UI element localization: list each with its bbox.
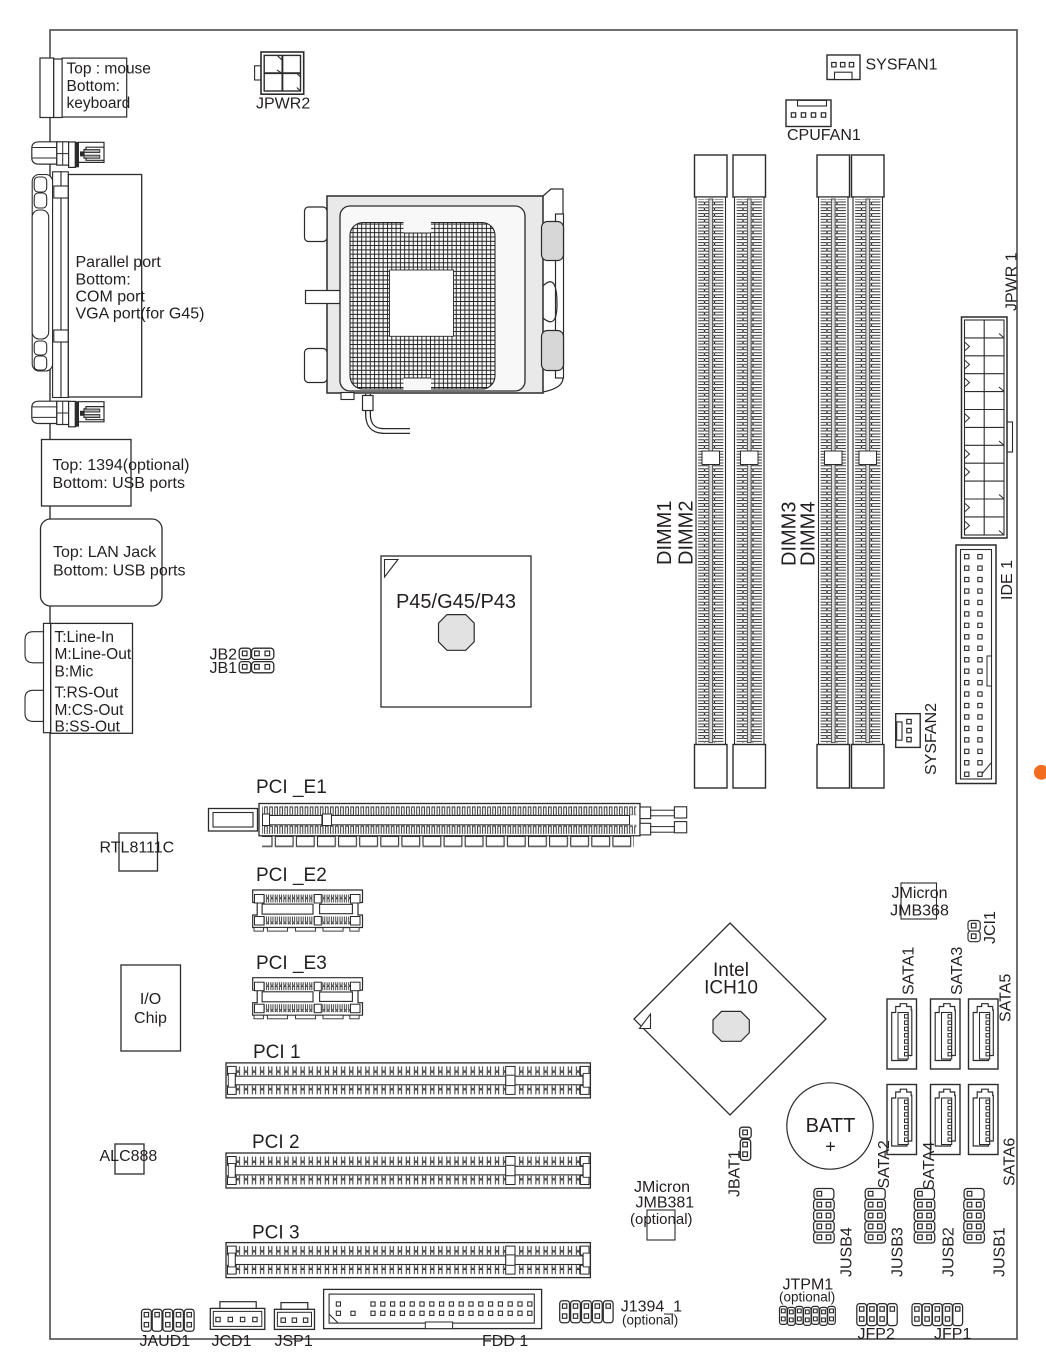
svg-text:JMicron: JMicron xyxy=(891,885,947,902)
svg-text:JB1: JB1 xyxy=(210,660,238,677)
svg-text:ICH10: ICH10 xyxy=(704,978,758,999)
svg-text:Top : mouse: Top : mouse xyxy=(67,61,151,78)
svg-text:(optional): (optional) xyxy=(622,1313,678,1328)
svg-text:JPWR2: JPWR2 xyxy=(256,96,310,113)
svg-text:PCI 1: PCI 1 xyxy=(253,1042,301,1063)
svg-text:SATA1: SATA1 xyxy=(901,947,918,995)
svg-text:JSP1: JSP1 xyxy=(275,1333,313,1350)
svg-text:T:RS-Out: T:RS-Out xyxy=(55,684,119,701)
svg-text:Parallel port: Parallel port xyxy=(76,254,162,271)
svg-text:VGA port(for G45): VGA port(for G45) xyxy=(76,306,205,323)
svg-text:SATA5: SATA5 xyxy=(998,974,1015,1022)
svg-text:JCD1: JCD1 xyxy=(212,1333,252,1350)
svg-text:SATA2: SATA2 xyxy=(876,1140,893,1188)
svg-text:+: + xyxy=(825,1137,836,1157)
svg-text:Bottom: USB ports: Bottom: USB ports xyxy=(53,475,186,492)
svg-text:JUSB3: JUSB3 xyxy=(890,1227,907,1277)
svg-text:COM port: COM port xyxy=(76,288,146,305)
svg-text:PCI 3: PCI 3 xyxy=(252,1223,300,1244)
svg-text:JFP1: JFP1 xyxy=(934,1326,971,1343)
svg-text:keyboard: keyboard xyxy=(67,95,131,112)
svg-text:DIMM4: DIMM4 xyxy=(798,502,820,566)
svg-text:Top: LAN Jack: Top: LAN Jack xyxy=(53,544,157,561)
svg-text:DIMM1: DIMM1 xyxy=(654,501,676,565)
svg-text:ALC888: ALC888 xyxy=(100,1148,158,1165)
svg-text:(optional): (optional) xyxy=(779,1290,835,1305)
svg-text:JUSB1: JUSB1 xyxy=(992,1227,1009,1277)
svg-text:JAUD1: JAUD1 xyxy=(140,1333,191,1350)
svg-text:B:SS-Out: B:SS-Out xyxy=(55,719,121,736)
svg-text:Bottom:: Bottom: xyxy=(76,271,131,288)
svg-text:CPUFAN1: CPUFAN1 xyxy=(787,127,861,144)
svg-text:(optional): (optional) xyxy=(630,1211,693,1228)
svg-text:SATA4: SATA4 xyxy=(921,1142,938,1190)
svg-text:IDE 1: IDE 1 xyxy=(999,560,1016,600)
svg-text:Bottom:: Bottom: xyxy=(67,78,120,95)
svg-text:SATA6: SATA6 xyxy=(1002,1138,1019,1186)
svg-text:PCI _E1: PCI _E1 xyxy=(256,777,327,798)
svg-text:B:Mic: B:Mic xyxy=(55,663,94,680)
svg-text:SATA3: SATA3 xyxy=(949,947,966,995)
svg-text:T:Line-In: T:Line-In xyxy=(55,629,114,646)
svg-text:I/O: I/O xyxy=(140,991,161,1008)
svg-text:JCI1: JCI1 xyxy=(982,911,999,944)
svg-text:JPWR 1: JPWR 1 xyxy=(1004,252,1021,311)
svg-text:Top: 1394(optional): Top: 1394(optional) xyxy=(53,457,190,474)
svg-text:DIMM2: DIMM2 xyxy=(676,501,698,565)
svg-text:M:Line-Out: M:Line-Out xyxy=(55,646,132,663)
svg-text:JMB368: JMB368 xyxy=(890,903,949,920)
svg-text:JUSB2: JUSB2 xyxy=(941,1227,958,1277)
svg-text:RTL8111C: RTL8111C xyxy=(100,840,175,857)
svg-text:P45/G45/P43: P45/G45/P43 xyxy=(396,591,516,613)
svg-text:SYSFAN2: SYSFAN2 xyxy=(923,703,940,775)
svg-text:SYSFAN1: SYSFAN1 xyxy=(866,57,938,74)
svg-text:JFP2: JFP2 xyxy=(858,1326,895,1343)
svg-text:PCI _E3: PCI _E3 xyxy=(256,953,327,974)
svg-text:BATT: BATT xyxy=(806,1115,856,1137)
svg-text:JMB381: JMB381 xyxy=(636,1195,695,1212)
svg-text:JBAT1: JBAT1 xyxy=(727,1150,744,1197)
svg-text:PCI _E2: PCI _E2 xyxy=(256,865,327,886)
svg-text:JMicron: JMicron xyxy=(634,1179,690,1196)
svg-text:FDD 1: FDD 1 xyxy=(482,1333,528,1350)
svg-text:Chip: Chip xyxy=(134,1010,167,1027)
svg-text:M:CS-Out: M:CS-Out xyxy=(55,702,125,719)
svg-text:PCI 2: PCI 2 xyxy=(252,1132,300,1153)
svg-text:Bottom: USB ports: Bottom: USB ports xyxy=(53,563,186,580)
svg-text:JUSB4: JUSB4 xyxy=(839,1227,856,1277)
